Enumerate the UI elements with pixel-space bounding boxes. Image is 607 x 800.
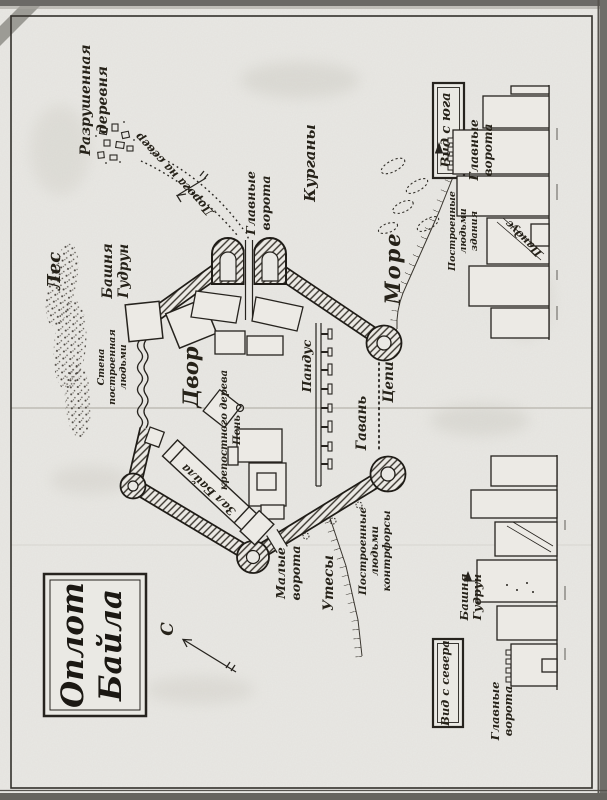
ramp-label: Пандус	[299, 339, 314, 393]
stump-label-line1: Пень	[232, 415, 243, 446]
gudrun-label-line2: Гудрун	[116, 244, 132, 299]
south-gate-label-line1: Главные	[467, 119, 481, 182]
label-main-gate: Главные ворота	[243, 171, 273, 236]
man-wall-label-line1: Стена	[96, 349, 107, 386]
north-tower-label-line1: Башня	[457, 574, 471, 622]
main-gate-label-line2: ворота	[258, 176, 273, 231]
label-chains: Цепи	[381, 361, 397, 403]
label-north-gate: Главные ворота	[488, 682, 515, 742]
south-buildings-label-line1: Построенные	[447, 191, 458, 272]
label-harbor: Гавань	[354, 396, 370, 452]
forest-label: Лес	[44, 252, 65, 291]
label-south-gate: Главные ворота	[467, 119, 495, 182]
label-cliffs: Утесы	[321, 555, 337, 611]
north-gate-label-line1: Главные	[488, 682, 502, 742]
map-canvas: Разрушенная деревня Дорога на север Глав…	[0, 0, 607, 800]
south-buildings-label-line3: здания	[469, 210, 480, 251]
buttresses-label-line1: Построенные	[357, 507, 369, 596]
north-tower-label-line2: Гудрун	[470, 574, 484, 621]
label-ramp: Пандус	[299, 339, 314, 393]
harbor-label: Гавань	[354, 396, 370, 452]
label-north-tower: Башня Гудрун	[457, 574, 484, 622]
buttresses-label-line3: контрфорсы	[381, 510, 393, 591]
village-label-line2: деревня	[95, 66, 111, 134]
title-line1: Оплот	[55, 582, 91, 708]
label-courtyard: Двор	[178, 346, 203, 408]
mounds-label: Курганы	[301, 124, 319, 202]
man-wall-label-line3: людьми	[118, 344, 129, 389]
sea-label: Море	[380, 231, 405, 305]
label-mounds: Курганы	[301, 124, 319, 202]
compass-north-label: С	[158, 622, 178, 636]
small-gate-label-line1: Малые	[273, 547, 288, 600]
gudrun-label-line1: Башня	[100, 243, 116, 299]
village-label-line1: Разрушенная	[78, 44, 94, 156]
label-forest: Лес	[44, 252, 65, 291]
main-gate-label-line1: Главные	[243, 171, 258, 236]
chains-label: Цепи	[381, 361, 397, 403]
title-line2: Байла	[93, 589, 129, 702]
label-sea: Море	[380, 231, 405, 305]
stump-label-line2: крепостного дерева	[219, 370, 230, 490]
south-gate-label-line2: ворота	[481, 124, 495, 177]
south-buildings-label-line2: людьми	[458, 208, 469, 253]
buttresses-label-line2: людьми	[369, 526, 381, 576]
map-title-box: Оплот Байла	[44, 574, 146, 716]
label-small-gate: Малые ворота	[273, 546, 303, 601]
north-view-title: Вид с севера	[438, 640, 452, 727]
courtyard-label: Двор	[178, 346, 203, 408]
small-gate-label-line2: ворота	[288, 546, 303, 601]
scanned-map-page: Разрушенная деревня Дорога на север Глав…	[0, 0, 607, 800]
cliffs-label: Утесы	[321, 555, 337, 611]
north-gate-label-line2: ворота	[501, 686, 515, 737]
label-gudrun-tower: Башня Гудрун	[100, 243, 132, 299]
man-wall-label-line2: построенная	[107, 329, 118, 405]
